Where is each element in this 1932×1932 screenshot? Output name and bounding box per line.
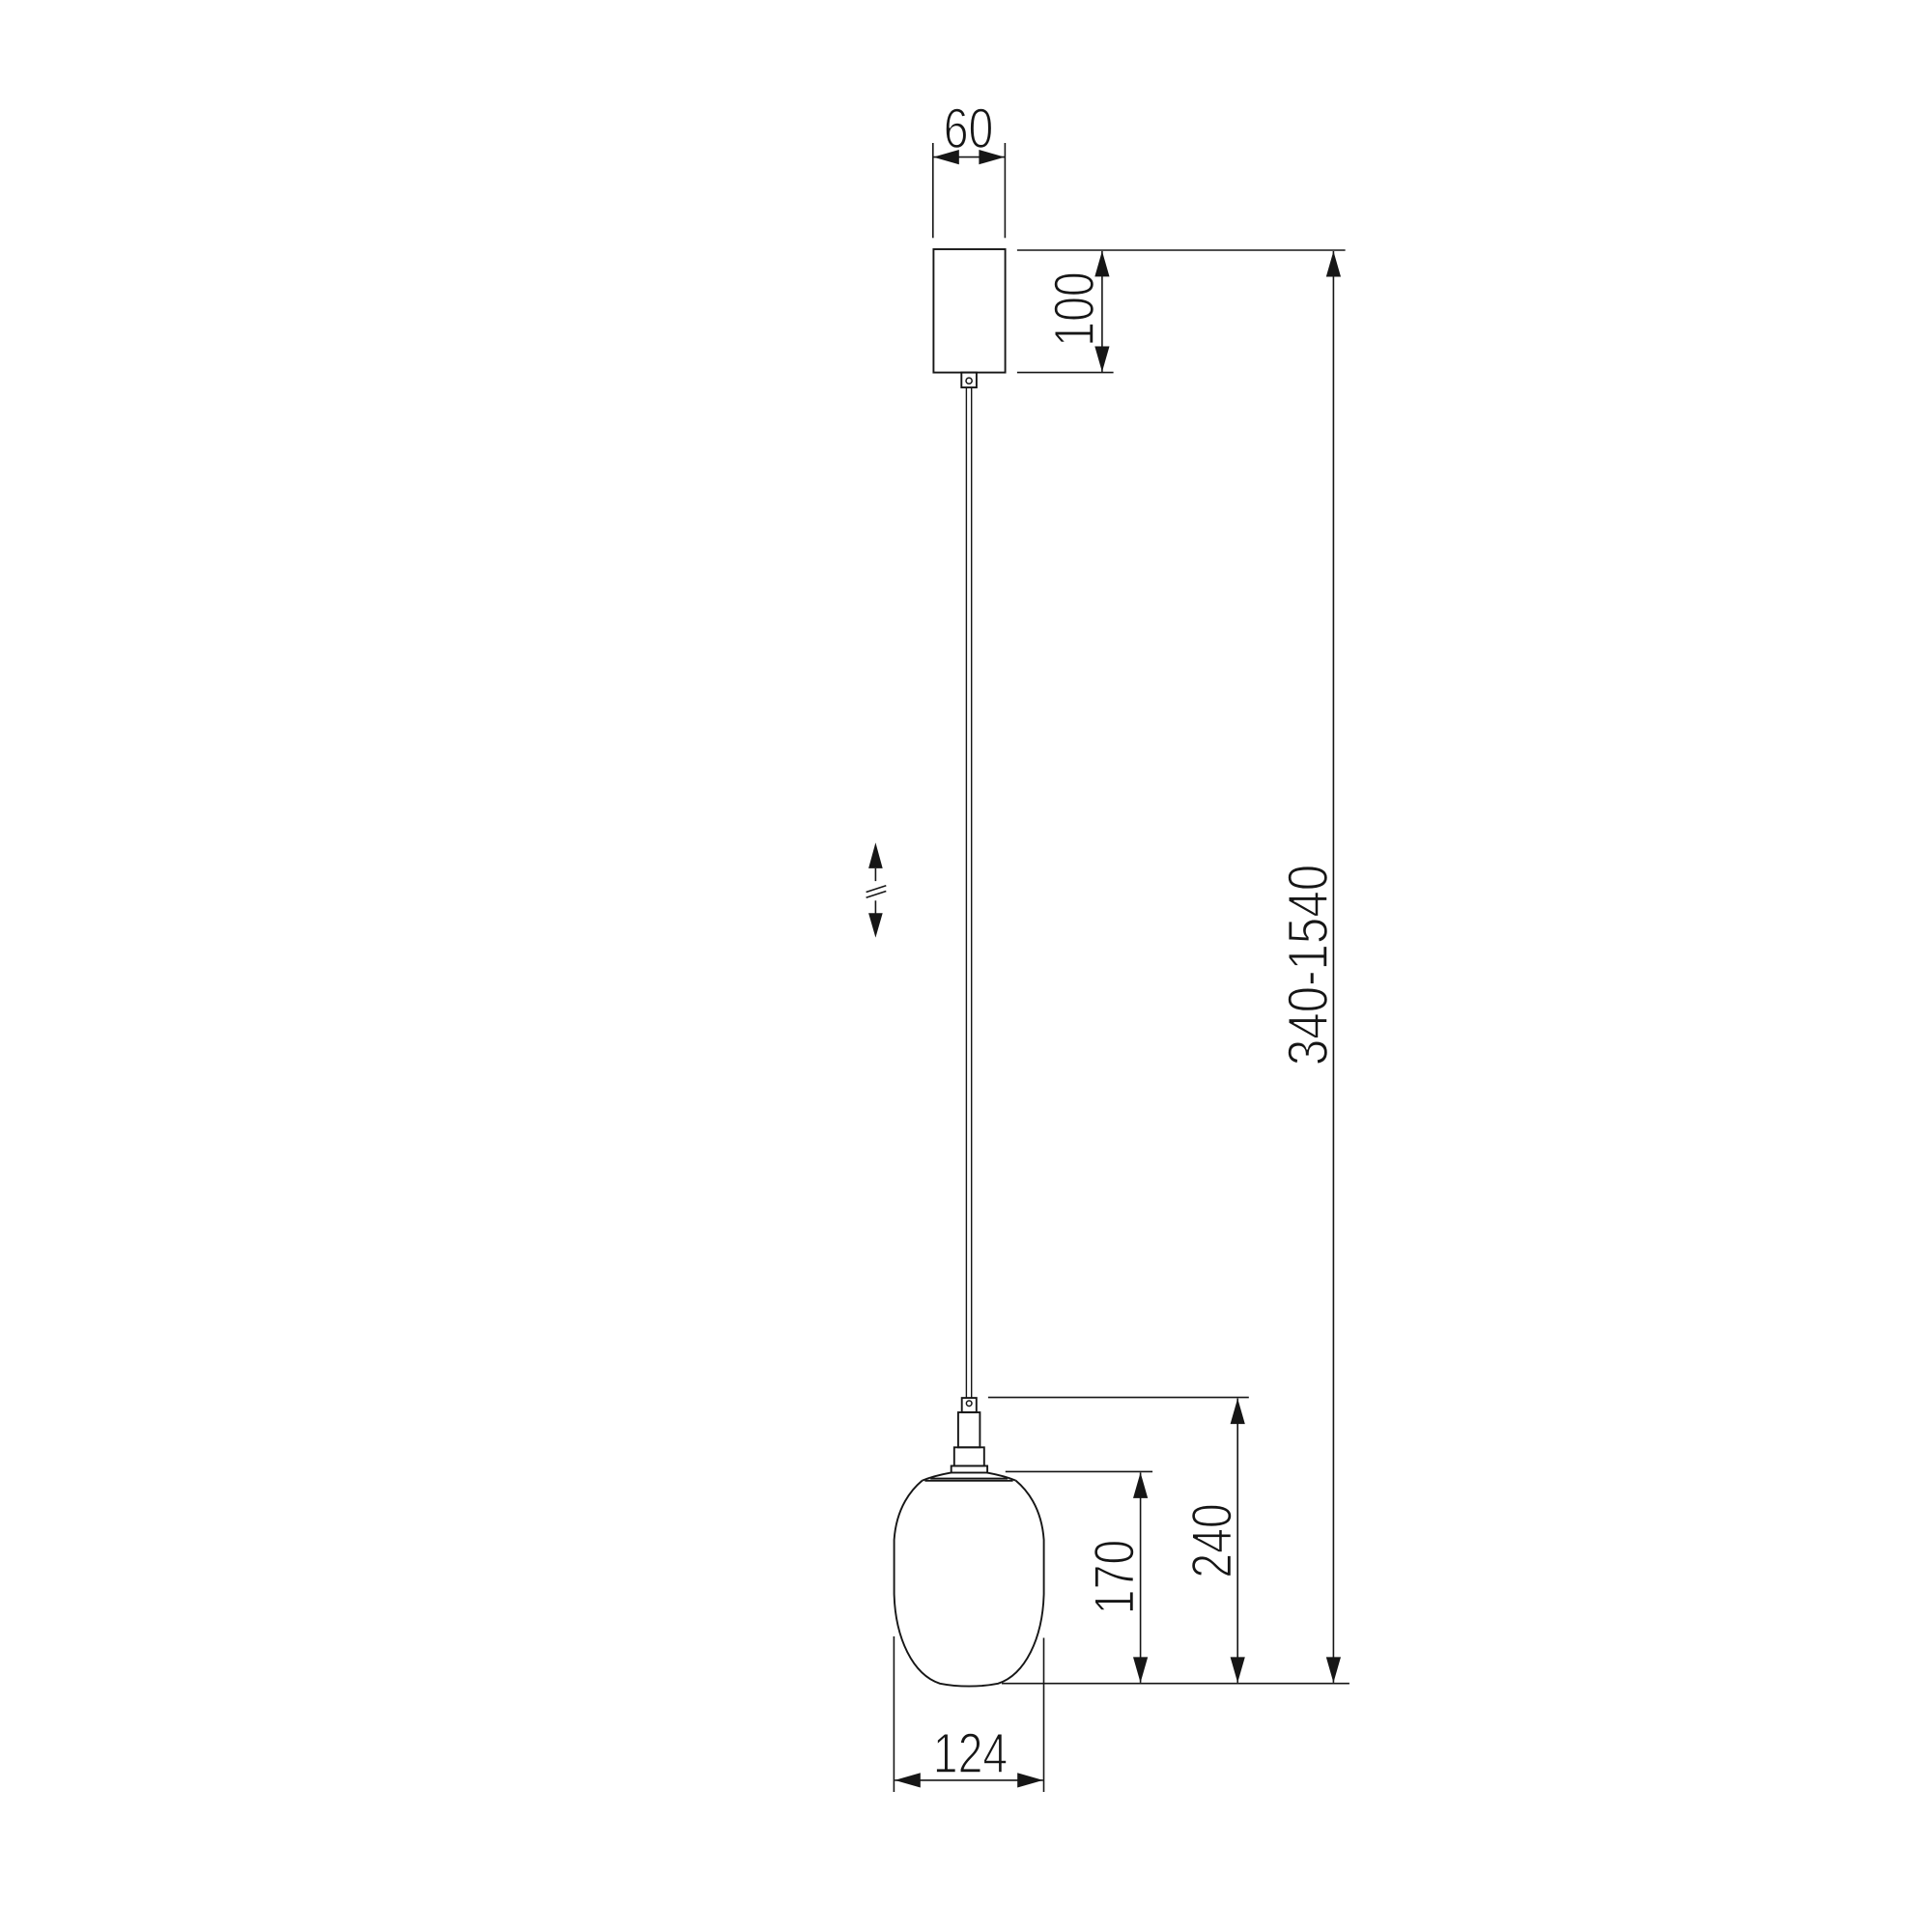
svg-text:240: 240 — [1180, 1503, 1243, 1577]
svg-text:340-1540: 340-1540 — [1277, 865, 1340, 1065]
svg-text:60: 60 — [944, 98, 994, 160]
svg-text:100: 100 — [1043, 271, 1106, 346]
svg-text:124: 124 — [933, 1722, 1008, 1785]
svg-text:170: 170 — [1084, 1540, 1147, 1614]
